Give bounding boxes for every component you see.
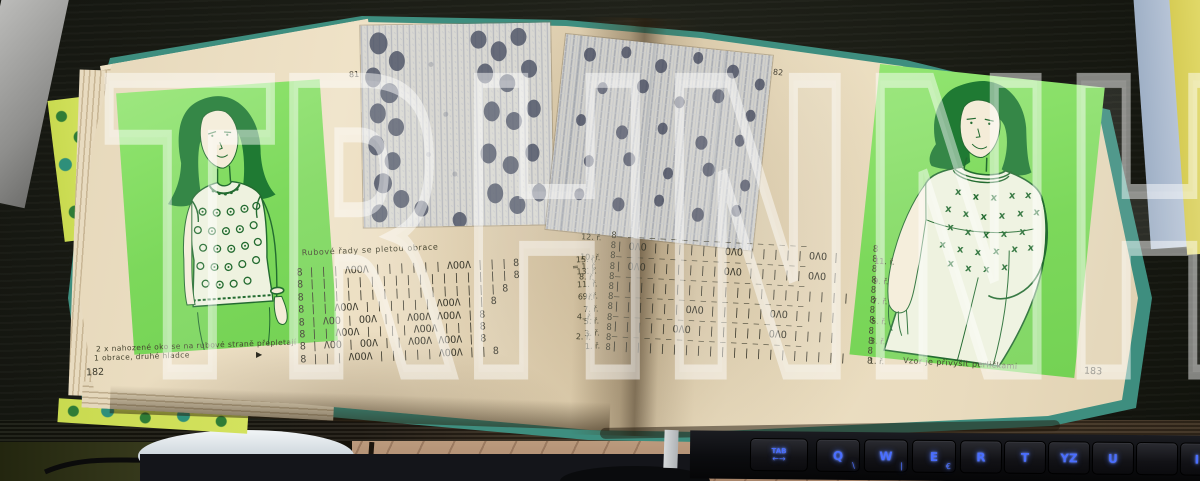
pointer-triangle-icon: ▶ <box>256 350 262 359</box>
knit-swatch-photo-82 <box>546 34 773 251</box>
page-number-182: 182 <box>86 367 105 379</box>
key-yz: YZ <box>1048 441 1090 474</box>
key-u: U <box>1092 442 1134 475</box>
key-e: E€ <box>912 440 956 473</box>
photo-number-81: 81 <box>349 70 360 80</box>
keyboard-side-strip <box>663 430 678 468</box>
key-unlit <box>1136 442 1178 475</box>
keyboard: TAB←→ Q\ W| E€ R T YZ U I <box>690 425 1200 481</box>
photo-scene: 81 82 xxxxx xxxxxx xxxxx xxxxxx xxxx <box>0 0 1200 481</box>
knitting-chart-right: 8 8 8 8 8 8 8 8 8 8 8 8 8 8 8 8 8 8 8 8 … <box>575 231 917 368</box>
key-q: Q\ <box>816 439 860 472</box>
key-t: T <box>1004 441 1046 474</box>
photo-number-82: 82 <box>773 68 784 78</box>
knitting-chart-left: Rubové řady se pletou obrace 8 | | | ΛOO… <box>296 235 603 366</box>
page-number-183: 183 <box>1084 366 1103 378</box>
knit-swatch-photo-81 <box>360 22 553 227</box>
key-w: W| <box>864 439 908 472</box>
key-r: R <box>960 440 1002 473</box>
key-i: I <box>1180 442 1200 475</box>
key-tab: TAB←→ <box>750 438 808 472</box>
